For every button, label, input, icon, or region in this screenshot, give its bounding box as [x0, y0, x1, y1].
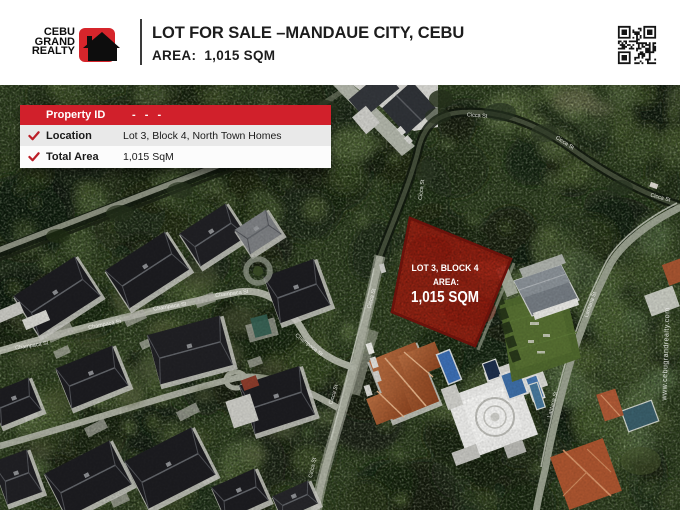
svg-text:LOT 3, BLOCK 4: LOT 3, BLOCK 4 — [412, 263, 480, 274]
svg-text:1,015 SQM: 1,015 SQM — [411, 289, 479, 306]
svg-text:AREA:: AREA: — [433, 277, 459, 288]
